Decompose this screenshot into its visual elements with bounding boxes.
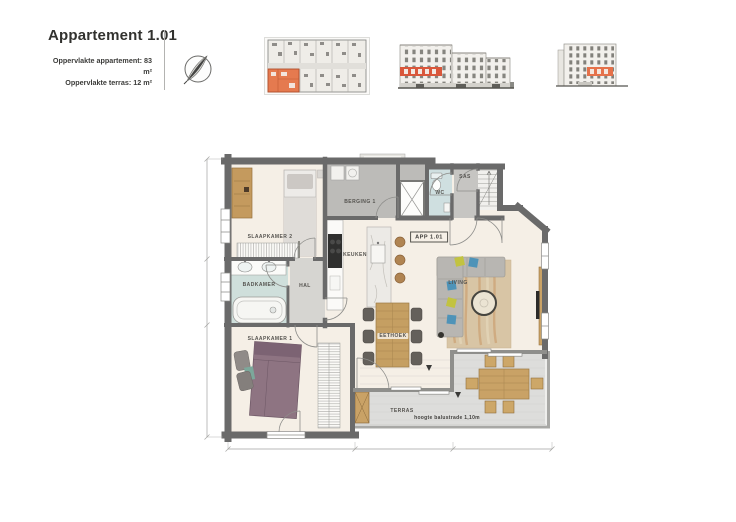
hal-floor [290,258,325,325]
terrace-chair [466,378,478,389]
plan-sheet: Appartement 1.01 Oppervlakte appartement… [0,0,736,522]
dining-chair [411,352,422,365]
north-compass-icon [179,50,217,88]
room-label-eethoek: EETHOEK [377,333,408,339]
terrace-chair [485,355,496,367]
dining-chair [363,308,374,321]
dining-chair [411,308,422,321]
tv [536,291,540,319]
area-terrace: Oppervlakte terras: 12 m² [46,77,152,88]
sliding-door [457,349,491,352]
highlighted-floor [587,67,613,76]
room-label-hal: HAL [299,283,311,289]
bar-stool [395,237,405,247]
room-label-badkamer: BADKAMER [243,282,276,288]
highlighted-floor [400,67,442,76]
floor-lamp [438,332,444,338]
area-facts: Oppervlakte appartement: 83 m² Oppervlak… [46,55,152,88]
room-label-keuken: KEUKEN [343,252,367,258]
front-elevation-thumbnail [396,40,516,93]
kitchen-island [367,227,391,307]
sofa-chaise [437,257,463,337]
coffee-table [472,291,496,315]
header-divider [164,30,165,90]
floor-plan-drawing [195,145,570,460]
nightstand [318,170,324,178]
bar-stool [395,273,405,283]
dining-chair [411,330,422,343]
area-apartment: Oppervlakte appartement: 83 m² [46,55,152,77]
dining-chair [363,330,374,343]
floor-plan: SLAAPKAMER 2 BERGING 1 WC SAS BADKAMER H… [195,145,570,460]
room-label-terras: TERRAS [390,408,413,414]
room-label-berging: BERGING 1 [344,199,376,205]
room-label-living: LIVING [448,280,467,286]
terrace-chair [531,378,543,389]
bar-stool [395,255,405,265]
terrace-chair [485,401,496,413]
page-title: Appartement 1.01 [48,27,177,44]
elevator [400,181,424,218]
sink [238,262,252,272]
pillow-blue [446,315,456,325]
sliding-door [488,353,522,356]
unit-tag: APP 1.01 [410,232,448,243]
pillow-blue [468,257,478,267]
terrace-chair [503,355,514,367]
balustrade-note: hoogte balustrade 1,10m [414,415,480,421]
highlighted-unit [268,69,299,92]
pillow [287,174,313,189]
sink [262,262,276,272]
wardrobe [232,168,252,218]
pillow-yellow [454,256,465,267]
rear-elevation-thumbnail [554,38,632,93]
room-label-slaapkamer1: SLAAPKAMER 1 [248,336,293,342]
terrace-chair [503,401,514,413]
room-label-wc: WC [435,190,444,196]
basin [444,203,450,212]
room-label-slaapkamer2: SLAAPKAMER 2 [248,234,293,240]
room-label-sas: SAS [459,174,471,180]
sliding-door [391,387,421,390]
site-plan-thumbnail [263,36,371,96]
island-sink [371,245,385,263]
sliding-door [419,391,449,394]
toilet [432,180,440,191]
